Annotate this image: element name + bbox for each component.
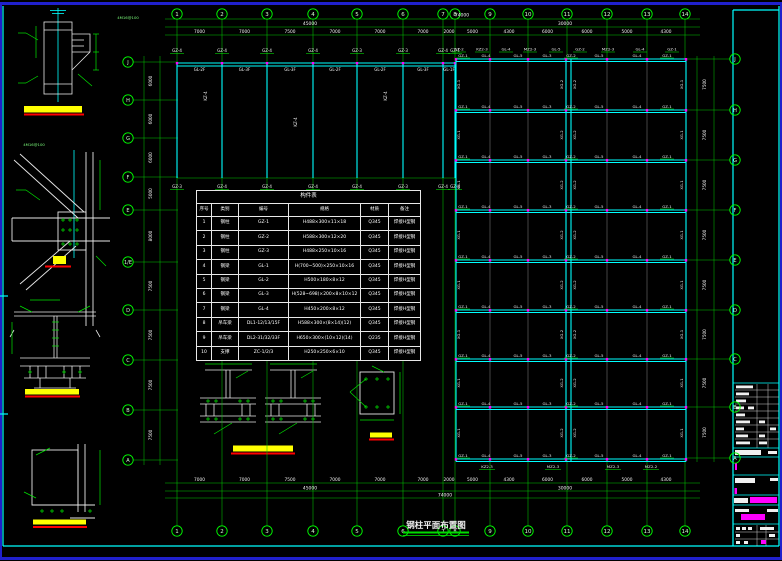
member-label-vertical: XG-1: [456, 180, 461, 190]
schedule-cell: 焊接H型钢: [389, 274, 421, 288]
dim-text-vertical: 7500: [148, 429, 153, 440]
axis-bubble-label: F: [127, 175, 130, 181]
member-label-vertical: XG-2: [559, 230, 564, 240]
schedule-cell: Q345: [361, 231, 389, 245]
member-label: GL-3: [543, 53, 553, 58]
node-marker: [489, 309, 491, 312]
schedule-cell: Q345: [361, 317, 389, 331]
member-label: GL-2F: [374, 67, 386, 72]
member-label: GZ-3: [398, 48, 408, 53]
schedule-cell: GZ-3: [239, 245, 289, 259]
member-label: MZ2-3: [524, 47, 537, 52]
highlight-bar: [25, 389, 79, 395]
dim-text: 4300: [504, 477, 515, 483]
schedule-cell: Q345: [361, 260, 389, 274]
node-marker: [685, 458, 687, 461]
axis-bubble-label: 4: [311, 529, 315, 535]
member-label: GZ-4: [308, 48, 318, 53]
member-label-vertical: KZ-4: [293, 117, 298, 127]
node-marker: [565, 406, 567, 409]
node-marker: [176, 62, 178, 64]
schedule-row: 6钢梁GL-3H(528~698)×200×8×10×12Q345焊接H型钢: [197, 288, 421, 302]
node-marker: [606, 458, 608, 461]
dim-text-vertical: 7500: [148, 329, 153, 340]
schedule-cell: H588×300×(8×14)(12): [289, 317, 361, 331]
axis-bubble-label: 5: [355, 529, 359, 535]
member-label: GL-4: [633, 353, 643, 358]
schedule-cell: 钢柱: [212, 217, 239, 231]
member-label-vertical: XG-1: [679, 180, 684, 190]
node-marker: [646, 58, 648, 61]
dim-text: 6000: [542, 477, 553, 483]
axis-bubble-label: 7: [441, 12, 445, 18]
member-label-vertical: XG-2: [572, 378, 577, 388]
schedule-row: 4钢梁GL-1H(700~500)×250×10×16Q345焊接H型钢: [197, 260, 421, 274]
axis-bubble-label: 11: [564, 12, 571, 18]
detail-beam-connection-a: [200, 364, 321, 455]
schedule-cell: 钢柱: [212, 245, 239, 259]
axis-bubble-label: 3: [265, 529, 269, 535]
node-marker: [527, 259, 529, 262]
member-label: GZ-1: [458, 204, 468, 209]
member-label-vertical: XG-1: [679, 79, 684, 89]
schedule-cell: 钢梁: [212, 274, 239, 288]
node-marker: [606, 309, 608, 312]
schedule-cell: DL1-12/13/15F: [239, 317, 289, 331]
member-label: GZ-1: [667, 47, 677, 52]
member-label: GL-5: [514, 204, 524, 209]
schedule-cell: H650×300×(10×12)(14): [289, 332, 361, 346]
member-label: GL-4: [482, 154, 492, 159]
member-label-vertical: XG-2: [559, 280, 564, 290]
axis-bubble-label: 3: [265, 12, 269, 18]
axis-bubble-label: 12: [604, 12, 611, 18]
axis-bubble-label: 1/E: [124, 260, 132, 266]
schedule-cell: 支撑: [212, 346, 239, 360]
member-label: GL-4: [633, 453, 643, 458]
member-label: GL-5: [514, 401, 524, 406]
detail-column-splice: [18, 8, 99, 116]
member-label: GL-4: [502, 47, 512, 52]
member-label: GZ-1: [458, 453, 468, 458]
dim-text-vertical: 7500: [702, 129, 707, 140]
schedule-row: 7钢梁GL-4H450×200×8×12Q345焊接H型钢: [197, 303, 421, 317]
titleblock-text-lines: [734, 386, 778, 545]
revision-line: [45, 266, 71, 268]
schedule-cell: Q345: [361, 346, 389, 360]
schedule-row: 5钢梁GL-2H500×180×8×12Q345焊接H型钢: [197, 274, 421, 288]
member-label: GZ-2: [566, 304, 576, 309]
dim-total: 74000: [455, 13, 469, 19]
axis-bubble-label: 13: [644, 12, 651, 18]
member-label: GL-4: [482, 401, 492, 406]
node-marker: [606, 209, 608, 212]
node-marker: [455, 159, 457, 162]
dim-text: 7500: [285, 29, 296, 35]
member-label: GL-5: [595, 204, 605, 209]
schedule-cell: 钢梁: [212, 260, 239, 274]
dim-text: 7500: [285, 477, 296, 483]
schedule-cell: GZ-2: [239, 231, 289, 245]
schedule-header: 备注: [389, 204, 421, 217]
node-marker: [606, 406, 608, 409]
node-marker: [685, 406, 687, 409]
member-label: GL-3: [543, 401, 553, 406]
member-label: GL-4: [482, 53, 492, 58]
dim-text-vertical: 7500: [702, 377, 707, 388]
member-label: GZ-2: [566, 53, 576, 58]
schedule-cell: GL-2: [239, 274, 289, 288]
schedule-cell: 焊接H型钢: [389, 288, 421, 302]
schedule-cell: 钢梁: [212, 288, 239, 302]
member-label-vertical: XG-1: [679, 378, 684, 388]
node-marker: [685, 159, 687, 162]
member-label: GL-3: [543, 104, 553, 109]
schedule-cell: 8: [197, 317, 212, 331]
schedule-cell: 焊接H型钢: [389, 346, 421, 360]
dim-total: 45000: [303, 486, 317, 492]
detail-beam-section: [10, 306, 100, 398]
member-label: GZ-4: [352, 184, 362, 189]
node-marker: [455, 259, 457, 262]
schedule-cell: GZ-1: [239, 217, 289, 231]
member-label-vertical: XG-1: [679, 280, 684, 290]
member-label: GL-4: [633, 104, 643, 109]
node-marker: [565, 58, 567, 61]
member-label: GL-4: [633, 53, 643, 58]
member-label: MZ2-3: [602, 47, 615, 52]
schedule-header: 规格: [289, 204, 361, 217]
dim-total: 45000: [303, 21, 317, 27]
axis-bubble-label: E: [733, 258, 736, 264]
member-label: GL-5: [595, 353, 605, 358]
node-marker: [565, 458, 567, 461]
member-label: GL-3F: [284, 67, 296, 72]
dim-text: 7000: [194, 477, 205, 483]
member-label: GZ-1: [458, 104, 468, 109]
member-label: GZ-4: [438, 48, 448, 53]
member-label: GZ-4: [217, 48, 227, 53]
detail-base-corner: [24, 444, 100, 528]
node-marker: [646, 259, 648, 262]
axis-bubble-label: A: [126, 458, 130, 464]
schedule-cell: 焊接H型钢: [389, 332, 421, 346]
member-label: GZ-4: [438, 184, 448, 189]
member-label: MZ2-3: [607, 464, 620, 469]
member-label: GZ-2: [454, 47, 464, 52]
member-label: MZ2-2: [645, 464, 658, 469]
schedule-cell: H(700~500)×250×10×16: [289, 260, 361, 274]
drawing-caption: 钢柱平面布置图: [403, 520, 469, 536]
member-label: GL-4: [482, 254, 492, 259]
member-label: GZ-3: [172, 184, 182, 189]
node-marker: [402, 62, 404, 64]
member-label-vertical: XG-2: [559, 130, 564, 140]
dim-text: 7000: [418, 29, 429, 35]
dim-total: 74000: [438, 493, 452, 499]
highlight-bar: [33, 520, 86, 525]
node-marker: [565, 309, 567, 312]
member-label-vertical: XG-2: [572, 130, 577, 140]
node-marker: [606, 159, 608, 162]
node-marker: [221, 62, 223, 64]
member-label-vertical: XG-2: [572, 329, 577, 339]
member-label: KZ2-3: [476, 47, 488, 52]
member-label-vertical: XG-2: [559, 378, 564, 388]
highlight-bar: [370, 433, 392, 438]
schedule-cell: DL2-31/32/33F: [239, 332, 289, 346]
axis-bubble-label: C: [126, 358, 130, 364]
member-label: GL-4: [633, 254, 643, 259]
dim-text-vertical: 6000: [148, 152, 153, 163]
node-marker: [527, 458, 529, 461]
dim-text: 7000: [375, 29, 386, 35]
dim-text: 2000: [444, 29, 455, 35]
schedule-cell: 4: [197, 260, 212, 274]
member-label-vertical: XG-1: [679, 230, 684, 240]
member-label: GL-5: [595, 254, 605, 259]
member-label: GL-1F: [443, 67, 455, 72]
highlight-bar: [24, 106, 82, 113]
axis-bubble-label: 2: [220, 12, 224, 18]
member-label: GL-3: [543, 204, 553, 209]
node-marker: [646, 406, 648, 409]
schedule-cell: 5: [197, 274, 212, 288]
dim-text: 4300: [504, 29, 515, 35]
node-marker: [455, 358, 457, 361]
schedule-cell: 吊车梁: [212, 332, 239, 346]
axis-bubble-label: 9: [488, 529, 492, 535]
axis-bubble-label: G: [733, 158, 737, 164]
highlight-bar: [233, 446, 293, 452]
node-marker: [565, 209, 567, 212]
node-marker: [442, 62, 444, 64]
dim-text-vertical: 7500: [702, 427, 707, 438]
axis-bubble-label: B: [126, 408, 130, 414]
node-marker: [266, 62, 268, 64]
axis-bubble-label: A: [733, 456, 737, 462]
detail-brace-gusset: [12, 150, 110, 326]
node-marker: [685, 58, 687, 61]
dim-text: 6000: [582, 29, 593, 35]
member-label: GL-5: [514, 154, 524, 159]
member-label: GL-4: [482, 304, 492, 309]
schedule-row: 10支撑ZC-1/2/3H250×250×6×10Q345焊接H型钢: [197, 346, 421, 360]
node-marker: [685, 309, 687, 312]
member-label-vertical: XG-2: [572, 428, 577, 438]
member-label: GZ-4: [262, 184, 272, 189]
axis-bubble-label: 9: [488, 12, 492, 18]
schedule-cell: H(528~698)×200×8×10×12: [289, 288, 361, 302]
revision-line: [25, 396, 80, 398]
member-label: GZ-4: [172, 48, 182, 53]
member-label: GZ-2: [566, 353, 576, 358]
member-label: GZ-4: [262, 48, 272, 53]
node-marker: [527, 358, 529, 361]
node-marker: [489, 406, 491, 409]
member-label: GZ-1: [662, 254, 672, 259]
schedule-cell: 6: [197, 288, 212, 302]
member-label: GL-2F: [329, 67, 341, 72]
node-marker: [455, 406, 457, 409]
dim-text: 5000: [467, 477, 478, 483]
member-label: GL-5: [514, 453, 524, 458]
dim-text: 7000: [418, 477, 429, 483]
axis-bubble-label: 1: [175, 529, 179, 535]
dim-text: 7000: [239, 29, 250, 35]
dim-text: 4300: [661, 29, 672, 35]
member-label: GL-5: [552, 47, 562, 52]
node-marker: [527, 209, 529, 212]
schedule-cell: H488×250×10×16: [289, 245, 361, 259]
node-marker: [685, 259, 687, 262]
node-marker: [685, 358, 687, 361]
node-marker: [646, 209, 648, 212]
node-marker: [489, 259, 491, 262]
schedule-header: 材质: [361, 204, 389, 217]
schedule-cell: GL-3: [239, 288, 289, 302]
axis-bubble-label: 13: [644, 529, 651, 535]
member-label: GL-5: [514, 104, 524, 109]
node-marker: [646, 458, 648, 461]
member-label: GL-3F: [417, 67, 429, 72]
member-label: GZ-1: [662, 401, 672, 406]
node-marker: [356, 62, 358, 64]
detail-note: 4M16@100: [23, 142, 45, 147]
dim-text-vertical: 8000: [148, 230, 153, 241]
node-marker: [527, 406, 529, 409]
member-label: GL-4: [482, 453, 492, 458]
dim-text: 5000: [622, 29, 633, 35]
axis-bubble-label: 14: [682, 12, 689, 18]
axis-bubble-label: 12: [604, 529, 611, 535]
node-marker: [565, 159, 567, 162]
dim-text: 6000: [582, 477, 593, 483]
dim-text-vertical: 6000: [148, 113, 153, 124]
member-label: GZ-1: [662, 304, 672, 309]
member-label: GZ-3: [352, 48, 362, 53]
node-marker: [646, 109, 648, 112]
axis-bubble-label: J: [733, 57, 735, 63]
node-marker: [606, 358, 608, 361]
member-label-vertical: XG-1: [456, 428, 461, 438]
node-marker: [312, 62, 314, 64]
revision-line: [33, 526, 87, 528]
schedule-cell: 钢柱: [212, 231, 239, 245]
node-marker: [565, 109, 567, 112]
node-marker: [685, 109, 687, 112]
member-label: GL-5: [595, 154, 605, 159]
schedule-cell: 7: [197, 303, 212, 317]
axis-bubble-label: G: [126, 136, 130, 142]
dim-text-vertical: 7500: [702, 229, 707, 240]
schedule-cell: ZC-1/2/3: [239, 346, 289, 360]
axis-bubble-label: H: [733, 108, 737, 114]
member-label: GL-2F: [194, 67, 206, 72]
member-label: GZ-3: [398, 184, 408, 189]
detail-base-plate: [350, 366, 400, 441]
node-marker: [489, 458, 491, 461]
dim-text: 7000: [330, 477, 341, 483]
dim-text: 7000: [330, 29, 341, 35]
node-marker: [565, 259, 567, 262]
schedule-cell: H250×250×6×10: [289, 346, 361, 360]
revision-line: [369, 439, 394, 441]
node-marker: [527, 58, 529, 61]
node-marker: [455, 209, 457, 212]
schedule-cell: 焊接H型钢: [389, 231, 421, 245]
axis-bubble-label: 4: [311, 12, 315, 18]
node-marker: [489, 109, 491, 112]
member-label: GL-4: [633, 304, 643, 309]
dim-text: 6000: [542, 29, 553, 35]
member-label: GL-3: [543, 254, 553, 259]
axis-bubble-label: 6: [401, 12, 405, 18]
member-label-vertical: XG-1: [456, 378, 461, 388]
member-label: GZ-2: [566, 154, 576, 159]
schedule-cell: 吊车梁: [212, 317, 239, 331]
member-label: GZ-2: [566, 204, 576, 209]
axis-bubble-label: 11: [564, 529, 571, 535]
schedule-cell: 焊接H型钢: [389, 260, 421, 274]
node-marker: [565, 358, 567, 361]
schedule-cell: Q345: [361, 303, 389, 317]
schedule-cell: 2: [197, 231, 212, 245]
node-marker: [455, 109, 457, 112]
member-label-vertical: XG-2: [559, 428, 564, 438]
member-label: KZ2-3: [481, 464, 493, 469]
member-label: GL-4: [636, 47, 646, 52]
axis-bubble-label: 5: [355, 12, 359, 18]
member-label-vertical: XG-1: [679, 329, 684, 339]
axis-bubble-label: 14: [682, 529, 689, 535]
axis-bubble-label: B: [733, 405, 737, 411]
schedule-cell: 焊接H型钢: [389, 245, 421, 259]
schedule-table: 构件表序号类别编号规格材质备注1钢柱GZ-1H488×300×11×18Q345…: [196, 190, 420, 360]
schedule-header: 编号: [239, 204, 289, 217]
node-marker: [455, 58, 457, 61]
member-label: GL-5: [595, 104, 605, 109]
node-marker: [646, 309, 648, 312]
revision-line: [231, 453, 295, 455]
schedule-row: 2钢柱GZ-2H588×300×12×20Q345焊接H型钢: [197, 231, 421, 245]
member-label: GL-4: [482, 104, 492, 109]
schedule-cell: Q235: [361, 332, 389, 346]
dim-text-vertical: 7500: [702, 279, 707, 290]
schedule-cell: 3: [197, 245, 212, 259]
member-label: GL-4: [633, 401, 643, 406]
member-label: GZ-2: [575, 47, 585, 52]
member-label-vertical: XG-2: [572, 230, 577, 240]
node-marker: [489, 58, 491, 61]
highlight-bar: [53, 256, 66, 264]
member-label: GZ-1: [458, 154, 468, 159]
axis-bubble-label: D: [126, 308, 130, 314]
member-label: GL-4: [482, 204, 492, 209]
dim-text-vertical: 6000: [148, 75, 153, 86]
dim-text-vertical: 7500: [702, 79, 707, 90]
node-marker: [527, 109, 529, 112]
schedule-header: 类别: [212, 204, 239, 217]
member-label: GZ-2: [566, 453, 576, 458]
schedule-row: 1钢柱GZ-1H488×300×11×18Q345焊接H型钢: [197, 217, 421, 231]
member-label: GZ-1: [662, 53, 672, 58]
axis-bubble-label: 2: [220, 529, 224, 535]
schedule-cell: H488×300×11×18: [289, 217, 361, 231]
member-label: GZ-1: [662, 154, 672, 159]
dim-total: 30000: [558, 486, 572, 492]
schedule-cell: GL-1: [239, 260, 289, 274]
